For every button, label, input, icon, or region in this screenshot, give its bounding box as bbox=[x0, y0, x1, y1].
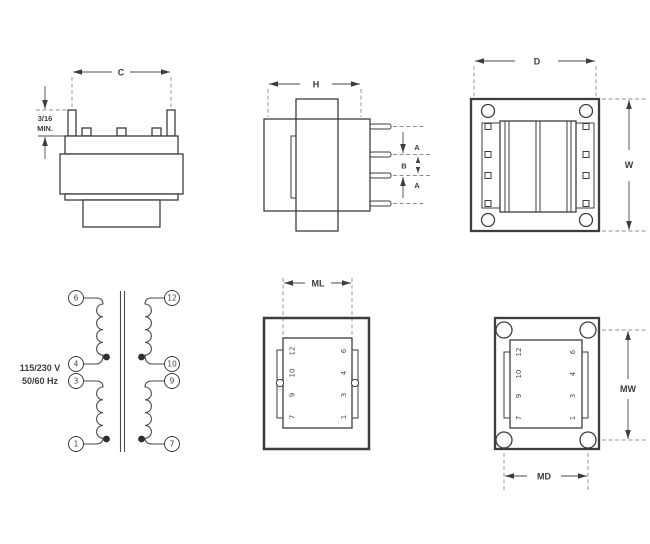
pin-pad bbox=[583, 124, 589, 130]
terminal-number: 7 bbox=[170, 440, 175, 449]
pin-number: 1 bbox=[569, 416, 577, 420]
locating-hole bbox=[276, 379, 283, 386]
lamination-stack bbox=[500, 121, 576, 212]
terminal-number: 4 bbox=[74, 360, 79, 369]
pin-number: 10 bbox=[515, 370, 523, 379]
pin-number: 12 bbox=[515, 348, 523, 357]
front-view: C 3/16 MIN. bbox=[36, 68, 183, 228]
mounting-hole bbox=[496, 432, 512, 448]
pin-pad bbox=[485, 173, 491, 179]
bobbin-flange bbox=[65, 194, 178, 200]
pin-number: 9 bbox=[289, 393, 297, 397]
mounting-hole bbox=[482, 105, 495, 118]
top-view: D W bbox=[471, 57, 646, 232]
dim-label-w: W bbox=[625, 160, 634, 170]
pin-number: 9 bbox=[515, 394, 523, 398]
dim-label-c: C bbox=[118, 68, 125, 78]
schematic-view: 115/230 V 50/60 Hz 6 4 3 1 12 10 9 7 bbox=[20, 291, 180, 453]
locating-hole bbox=[351, 379, 358, 386]
secondary-winding-coil bbox=[145, 381, 165, 444]
mounting-hole bbox=[482, 214, 495, 227]
pin-number: 3 bbox=[340, 393, 348, 397]
rating-frequency: 50/60 Hz bbox=[22, 376, 59, 386]
mounting-frame bbox=[471, 99, 599, 231]
secondary-winding-coil bbox=[145, 298, 165, 364]
lamination-stack bbox=[264, 119, 370, 211]
bobbin-boss bbox=[117, 128, 126, 136]
bottom-view: ML 12 10 9 7 6 4 3 1 bbox=[264, 278, 369, 449]
dim-label-mw: MW bbox=[620, 384, 636, 394]
pin-strip bbox=[576, 123, 594, 208]
bobbin-boss bbox=[82, 128, 91, 136]
transformer-outline-drawing: C 3/16 MIN. H bbox=[0, 0, 650, 544]
mounting-hole bbox=[580, 105, 593, 118]
pin-number: 1 bbox=[340, 415, 348, 419]
pin-pad bbox=[583, 152, 589, 158]
dim-label-pin-min: 3/16 bbox=[38, 114, 53, 123]
pin-number: 6 bbox=[340, 348, 348, 353]
mounting-hole bbox=[580, 214, 593, 227]
pin-number: 10 bbox=[289, 369, 297, 378]
polarity-dot bbox=[103, 354, 110, 361]
dim-label-b: B bbox=[401, 162, 407, 171]
pin-number: 7 bbox=[515, 416, 523, 420]
dim-label-a: A bbox=[414, 143, 420, 152]
solder-pin bbox=[68, 110, 76, 136]
bobbin-flange-edge bbox=[291, 136, 296, 198]
pin-number: 7 bbox=[289, 415, 297, 419]
polarity-dot bbox=[138, 436, 145, 443]
mounting-view: 12 10 9 7 6 4 3 1 MW MD bbox=[495, 318, 648, 491]
solder-pin bbox=[370, 173, 391, 178]
polarity-dot bbox=[138, 354, 145, 361]
pin-pad bbox=[485, 201, 491, 207]
mounting-hole bbox=[580, 322, 596, 338]
terminal-number: 1 bbox=[74, 440, 79, 449]
primary-winding-coil bbox=[84, 298, 104, 364]
lamination-stack bbox=[60, 154, 183, 194]
drawing-svg: C 3/16 MIN. H bbox=[0, 0, 650, 544]
solder-pin bbox=[370, 152, 391, 157]
polarity-dot bbox=[103, 436, 110, 443]
pin-number: 4 bbox=[569, 371, 577, 376]
terminal-number: 12 bbox=[167, 294, 177, 303]
solder-pin bbox=[167, 110, 175, 136]
dim-label-md: MD bbox=[537, 472, 551, 482]
terminal-number: 9 bbox=[170, 377, 175, 386]
pin-pad bbox=[583, 201, 589, 207]
pin-number: 4 bbox=[340, 370, 348, 375]
pin-pad bbox=[485, 152, 491, 158]
mounting-hole bbox=[580, 432, 596, 448]
bobbin-boss bbox=[152, 128, 161, 136]
rating-voltage: 115/230 V bbox=[20, 363, 61, 373]
pin-number: 3 bbox=[569, 394, 577, 398]
pin-pad bbox=[485, 124, 491, 130]
bobbin-base bbox=[83, 200, 160, 227]
dim-label-ml: ML bbox=[312, 279, 325, 289]
pin-strip bbox=[504, 352, 510, 418]
dim-label-d: D bbox=[534, 57, 541, 67]
pin-strip bbox=[582, 352, 588, 418]
pin-number: 12 bbox=[289, 347, 297, 356]
terminal-number: 6 bbox=[74, 294, 79, 303]
dim-label-pin-min: MIN. bbox=[37, 124, 53, 133]
dim-label-h: H bbox=[313, 80, 320, 90]
bobbin-flange bbox=[65, 136, 178, 154]
pin-strip bbox=[482, 123, 500, 208]
solder-pin bbox=[370, 201, 391, 206]
solder-pin bbox=[370, 124, 391, 129]
primary-winding-coil bbox=[84, 381, 104, 444]
dim-label-a: A bbox=[414, 181, 420, 190]
terminal-number: 10 bbox=[167, 360, 177, 369]
mounting-hole bbox=[496, 322, 512, 338]
pin-number: 6 bbox=[569, 349, 577, 354]
pin-pad bbox=[583, 173, 589, 179]
terminal-number: 3 bbox=[74, 377, 79, 386]
side-view: H A B A bbox=[264, 80, 430, 232]
